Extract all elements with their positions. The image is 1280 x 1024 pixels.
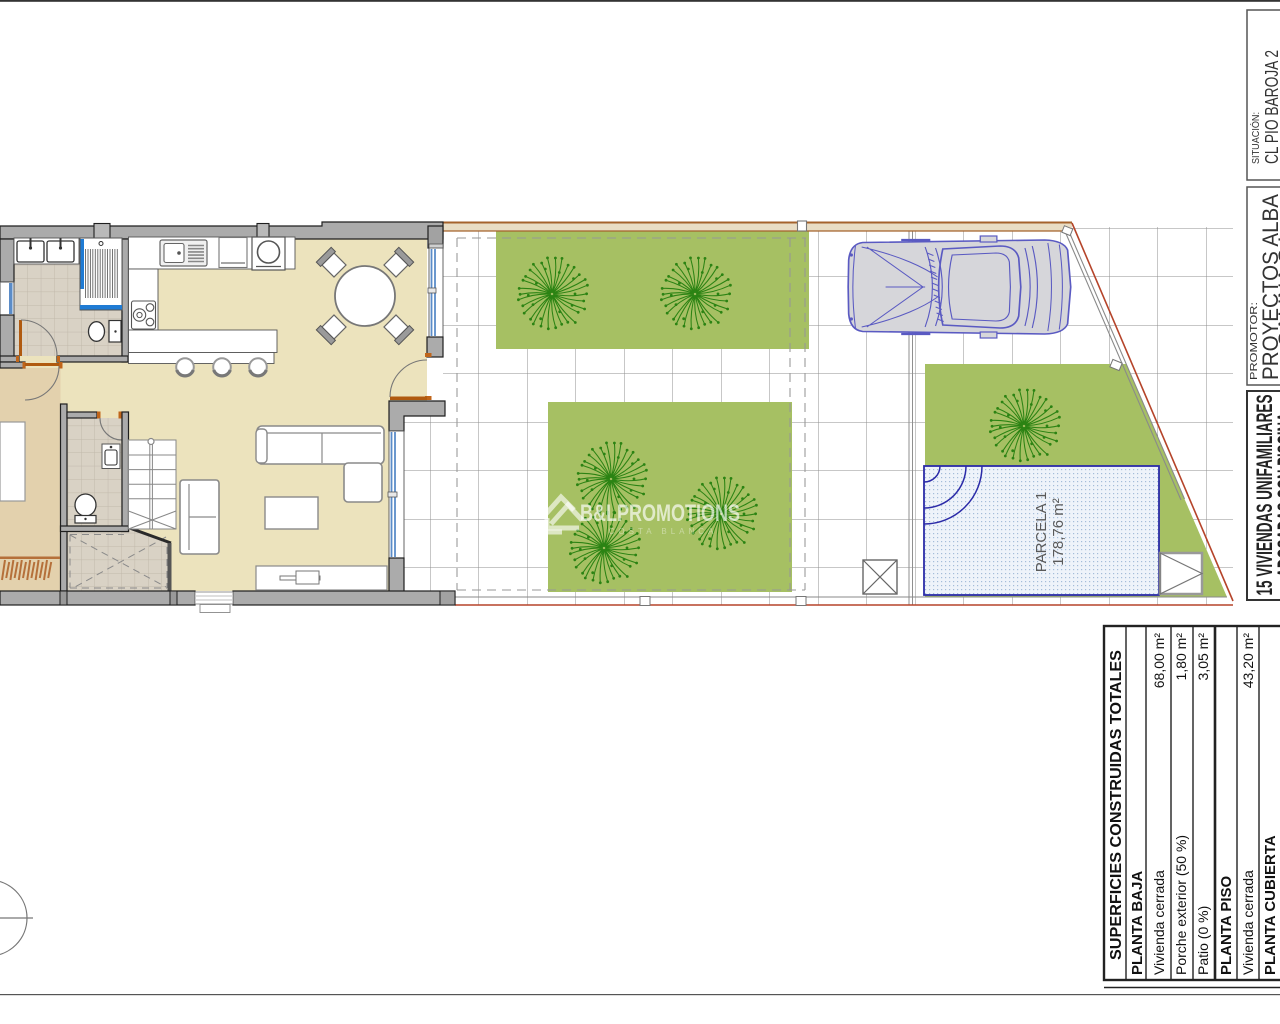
svg-text:68,00 m²: 68,00 m²	[1151, 633, 1167, 689]
svg-text:Vivienda cerrada: Vivienda cerrada	[1151, 870, 1167, 975]
svg-text:SITUACIÓN:: SITUACIÓN:	[1249, 112, 1262, 164]
svg-text:PLANTA PISO: PLANTA PISO	[1218, 875, 1235, 975]
svg-text:SUPERFICIES CONSTRUIDAS TOTALE: SUPERFICIES CONSTRUIDAS TOTALES	[1108, 650, 1125, 960]
svg-text:B&LPROMOTIONS: B&LPROMOTIONS	[580, 500, 740, 527]
svg-text:178,76 m²: 178,76 m²	[1050, 498, 1067, 566]
svg-text:PLANTA CUBIERTA: PLANTA CUBIERTA	[1262, 835, 1279, 975]
svg-text:COSTA BLANCA: COSTA BLANCA	[609, 527, 718, 536]
svg-text:CL PIO BAROJA 2: CL PIO BAROJA 2	[1262, 50, 1280, 164]
svg-text:Patio (0 %): Patio (0 %)	[1195, 906, 1211, 975]
svg-text:ADOSADAS CON PISCINA: ADOSADAS CON PISCINA	[1273, 412, 1280, 577]
svg-text:PARCELA 1: PARCELA 1	[1033, 492, 1050, 573]
svg-text:1,80 m²: 1,80 m²	[1173, 633, 1189, 681]
svg-text:Vivienda cerrada: Vivienda cerrada	[1240, 870, 1256, 975]
svg-text:Porche exterior (50 %): Porche exterior (50 %)	[1173, 835, 1189, 975]
svg-text:PLANTA BAJA: PLANTA BAJA	[1129, 871, 1146, 975]
svg-text:43,20 m²: 43,20 m²	[1240, 633, 1256, 689]
svg-text:SALINA S.L.: SALINA S.L.	[1274, 224, 1280, 346]
svg-text:3,05 m²: 3,05 m²	[1195, 633, 1211, 681]
